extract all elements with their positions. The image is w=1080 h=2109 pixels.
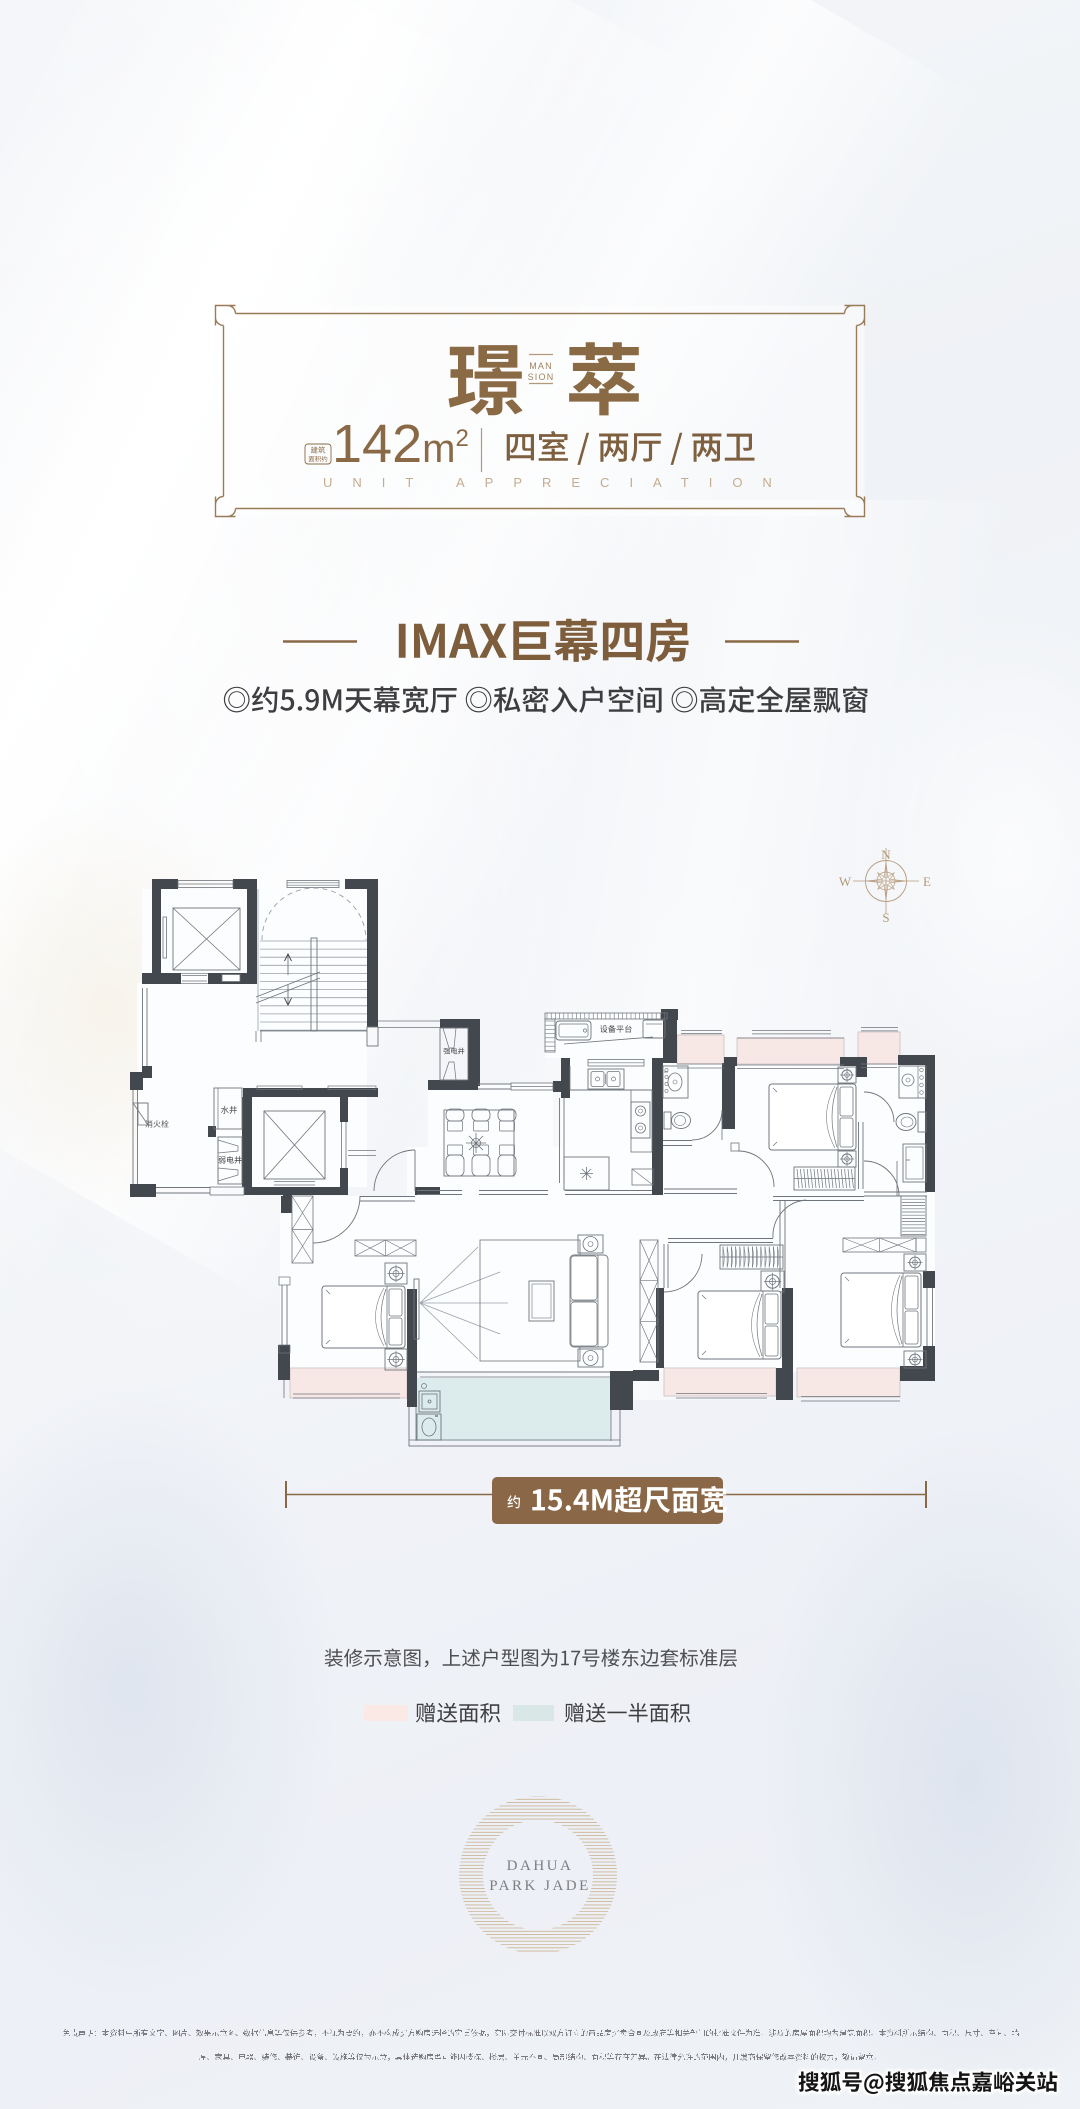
svg-text:UNIT APPRECIATION: UNIT APPRECIATION [323,475,792,490]
svg-text:N: N [881,847,891,862]
svg-text:W: W [839,874,852,889]
svg-text:PARK JADE: PARK JADE [489,1878,591,1894]
svg-text:S: S [882,910,889,925]
svg-text:SION: SION [528,372,555,382]
svg-text:MAN: MAN [529,361,553,371]
svg-text:DAHUA: DAHUA [507,1858,574,1874]
svg-text:E: E [923,874,931,889]
